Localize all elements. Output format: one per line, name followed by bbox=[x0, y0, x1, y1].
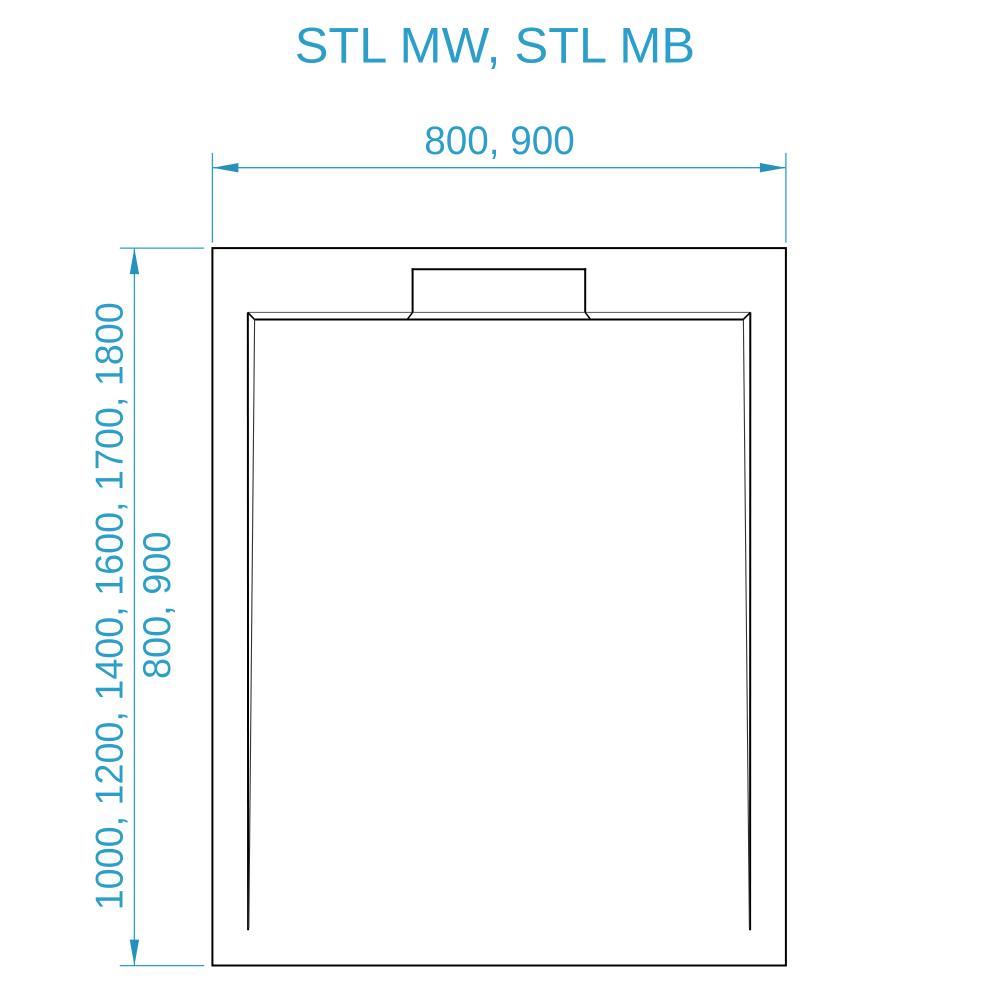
svg-text:STL MW, STL MB: STL MW, STL MB bbox=[295, 16, 695, 73]
svg-text:800, 900: 800, 900 bbox=[424, 119, 575, 163]
svg-text:800, 900: 800, 900 bbox=[136, 532, 179, 680]
svg-text:1000, 1200, 1400, 1600, 1700,: 1000, 1200, 1400, 1600, 1700, 1800 bbox=[89, 302, 132, 910]
